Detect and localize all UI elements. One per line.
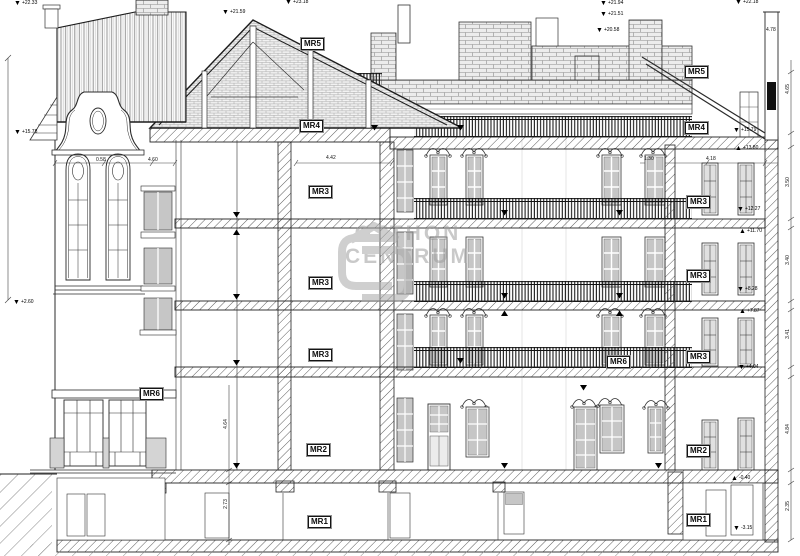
drawing-canvas: OTTHON CENTRUM MR5MR4MR3MR3MR3MR6MR2MR1M… — [0, 0, 800, 556]
shopfront-right — [109, 400, 146, 466]
chimney-cap — [43, 5, 60, 9]
side-bay — [140, 186, 176, 335]
watermark: OTTHON CENTRUM — [318, 222, 498, 268]
courtyard-windows-floor3 — [425, 149, 667, 205]
watermark-logo-icon — [318, 222, 428, 302]
arched-window-right — [106, 154, 130, 280]
left-facade — [30, 92, 176, 473]
wing-doors — [702, 163, 754, 470]
eave-steps — [30, 97, 57, 140]
arched-window-left — [66, 154, 90, 280]
chimney-small — [45, 9, 58, 28]
courtyard-facade — [397, 116, 692, 470]
courtyard-ground-floor — [428, 399, 669, 470]
ground-cornice — [52, 390, 176, 398]
main-roof — [150, 20, 462, 128]
chimney — [136, 0, 168, 15]
right-parapet — [765, 12, 778, 140]
shopfront-left — [64, 400, 103, 466]
